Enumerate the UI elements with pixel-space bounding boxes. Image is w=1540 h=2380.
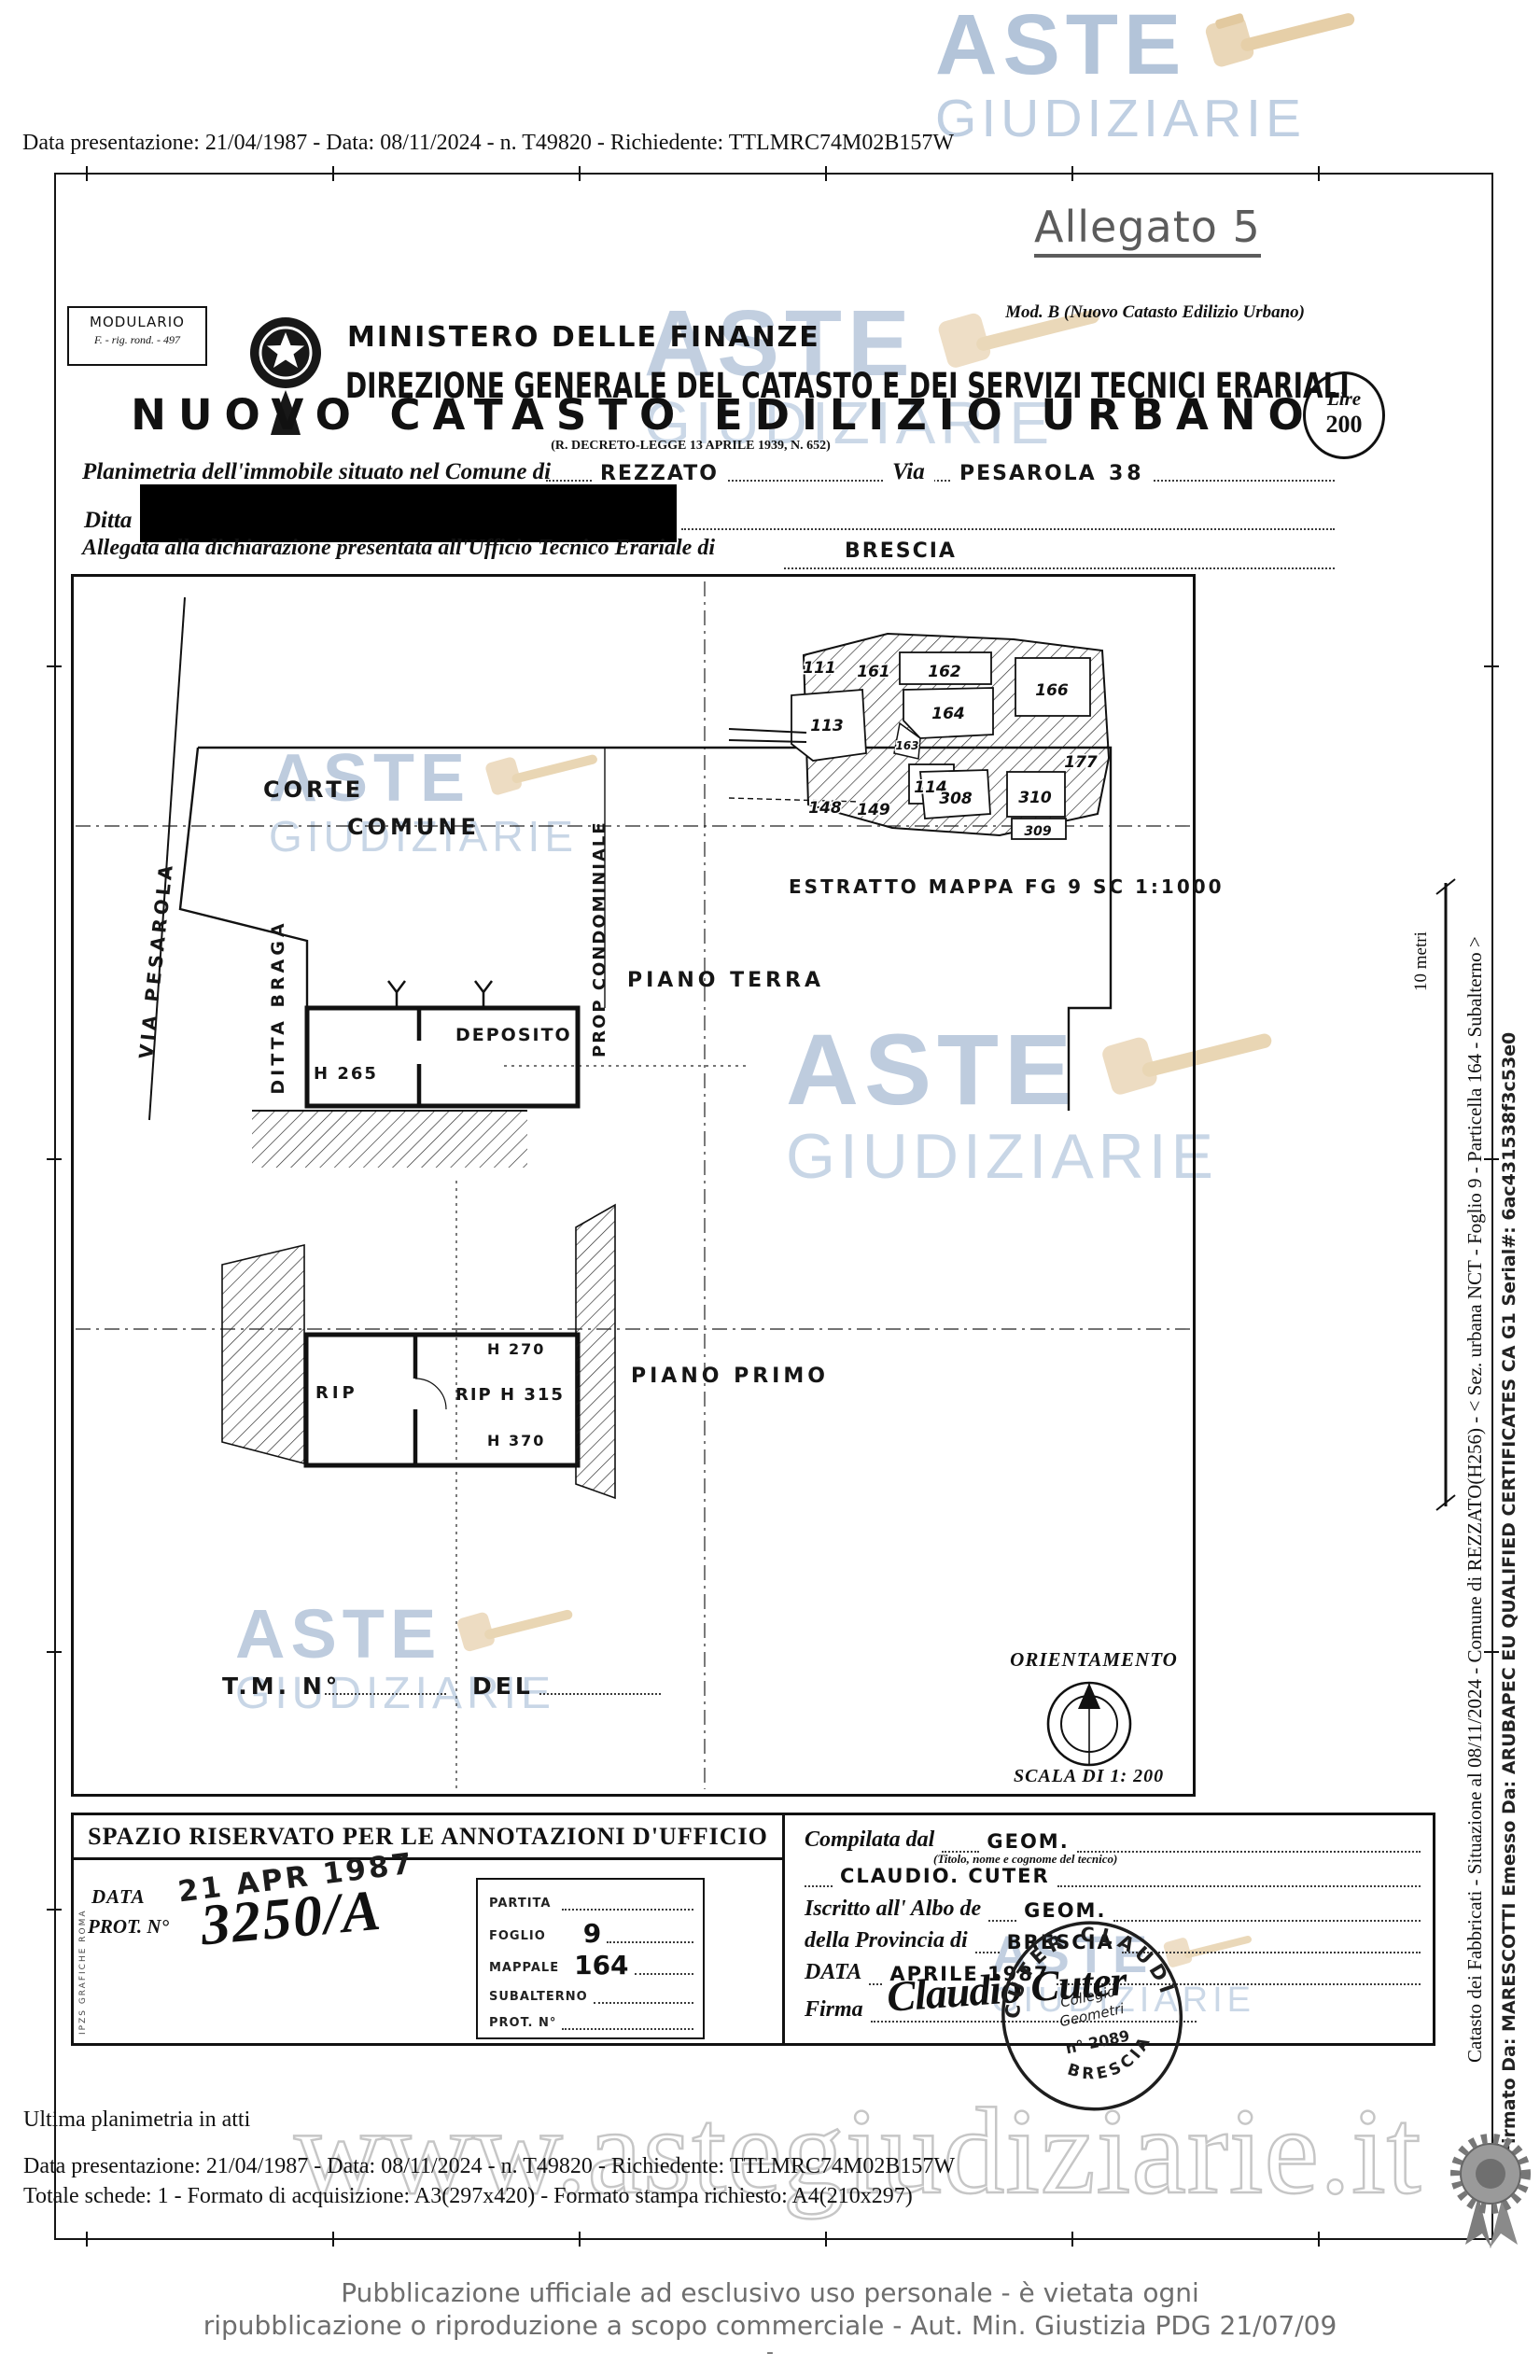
parcel-309: 309 [1024,824,1051,839]
data-label: DATA [91,1885,146,1909]
publication-line1: Pubblicazione ufficiale ad esclusivo uso… [233,2277,1307,2308]
floor-plan-drawing: 111 161 113 162 164 163 166 114 148 149 … [71,574,1196,1797]
parcel-164: 164 [931,705,965,723]
label-h265: H 265 [314,1064,378,1084]
frame-right [1491,173,1493,2240]
certificate-seal-icon [1445,2131,1536,2250]
label-piano-primo: PIANO PRIMO [631,1365,829,1388]
parcel-166: 166 [1035,681,1069,700]
compilata-label: Compilata dal [805,1827,934,1853]
ministero-line: MINISTERO DELLE FINANZE [347,321,820,354]
albo-label: Iscritto all' Albo de [805,1897,981,1922]
registry-value: 164 [574,1956,628,1975]
totale-line: Totale schede: 1 - Formato di acquisizio… [23,2184,913,2209]
civico-value: 38 [1101,462,1153,485]
logo-giudiziarie-text: GIUDIZIARIE [935,91,1358,147]
registry-label: FOGLIO [489,1929,546,1943]
gavel-icon [1199,4,1358,86]
parcel-163: 163 [895,739,918,752]
scala-label: SCALA DI 1: 200 [1014,1766,1164,1787]
document-page: ASTE GIUDIZIARIE ASTE GIUDIZIARIE ASTE [0,0,1540,2380]
label-h370: H 370 [487,1432,545,1449]
modulario-line1: MODULARIO [73,314,202,330]
map-caption: ESTRATTO MAPPA FG 9 SC 1:1000 [789,875,1143,898]
ditta-label: Ditta [84,508,132,534]
registry-label: MAPPALE [489,1961,559,1975]
redaction-bar [140,484,677,542]
registry-label: SUBALTERNO [489,1990,588,2004]
side-signature-line: Firmato Da: MARESCOTTI Emesso Da: ARUBAP… [1499,1032,1519,2156]
publication-line2: ripubblicazione o riproduzione a scopo c… [168,2310,1372,2341]
scale-bar-label: 10 metri [1411,931,1432,991]
allegata-label: Allegata alla dichiarazione presentata a… [82,536,715,561]
comune-value: REZZATO [593,462,726,485]
annotations-divider [782,1813,785,2046]
presentation-line-top: Data presentazione: 21/04/1987 - Data: 0… [22,131,954,156]
del-label: DEL [472,1673,534,1700]
label-rip-h315: RIP H 315 [455,1385,565,1405]
via-value: PESAROLA [952,462,1104,485]
decreto-line: (R. DECRETO-LEGGE 13 APRILE 1939, N. 652… [355,439,1027,454]
parcel-113: 113 [810,717,844,735]
frame-left [54,173,56,2240]
orientamento-label: ORIENTAMENTO [1010,1648,1178,1672]
label-piano-terra: PIANO TERRA [627,969,824,992]
footer-dash: - [747,2341,793,2364]
modulario-line2: F. - rig. rond. - 497 [73,333,202,347]
firma-label: Firma [805,1997,863,2023]
parcel-111: 111 [803,659,836,678]
allegato-title: Allegato 5 [1034,202,1261,252]
frame-top [54,173,1493,175]
modulario-box: MODULARIO F. - rig. rond. - 497 [67,306,207,366]
parcel-310: 310 [1018,789,1052,807]
ultima-line: Ultima planimetria in atti [23,2107,250,2133]
mod-b-line: Mod. B (Nuovo Catasto Edilizio Urbano) [887,302,1305,323]
aste-giudiziarie-logo: ASTE GIUDIZIARIE [935,2,1358,147]
label-ditta-braga: DITTA BRAGA [268,914,288,1100]
prot-label: PROT. N° [88,1915,169,1939]
parcel-162: 162 [928,663,961,681]
stamp-number: n° 2089 [1064,2026,1131,2057]
side-catasto-line: Catasto dei Fabbricati - Situazione al 0… [1463,936,1487,2063]
tm-label: T.M. N° [222,1673,341,1700]
ufficio-value: BRESCIA [835,539,966,563]
scale-bar [1434,877,1458,1512]
tecnico-value: CLAUDIO. CUTER [840,1865,1050,1887]
registry-value: 9 [583,1925,601,1943]
parcel-148: 148 [808,799,842,818]
via-label: Via [883,459,934,485]
provincia-label: della Provincia di [805,1928,968,1953]
label-comune: COMUNE [347,814,480,840]
planimetria-label: Planimetria dell'immobile situato nel Co… [82,459,551,485]
parcel-161: 161 [857,663,890,681]
registry-label: PROT. N° [489,2016,556,2030]
data2-label: DATA [805,1960,861,1985]
parcel-308: 308 [939,790,973,808]
presentation-line-bottom: Data presentazione: 21/04/1987 - Data: 0… [23,2154,955,2179]
annotations-header-text: SPAZIO RISERVATO PER LE ANNOTAZIONI D'UF… [88,1823,768,1851]
label-prop-condominiale: PROP CONDOMINIALE [590,829,609,1057]
printer-imprint: IPZS GRAFICHE ROMA [78,1909,88,2035]
label-h270: H 270 [487,1340,545,1358]
parcel-177: 177 [1064,753,1098,772]
label-deposito: DEPOSITO [455,1025,572,1045]
label-corte: CORTE [263,777,364,803]
frame-bottom [54,2238,1493,2240]
label-rip: RIP [315,1383,358,1403]
annotations-header-band: SPAZIO RISERVATO PER LE ANNOTAZIONI D'UF… [74,1815,782,1860]
registry-label: PARTITA [489,1897,551,1911]
parcel-149: 149 [857,801,890,819]
logo-aste-text: ASTE [935,2,1186,88]
registry-box: PARTITA FOGLIO 9 MAPPALE 164 SUBALTERNO … [476,1878,705,2039]
allegato-text: Allegato 5 [1034,202,1261,258]
compilata-value: GEOM. [987,1830,1069,1853]
form-title: NUOVO CATASTO EDILIZIO URBANO [121,390,1325,440]
map-extract: 111 161 113 162 164 163 166 114 148 149 … [729,634,1109,839]
